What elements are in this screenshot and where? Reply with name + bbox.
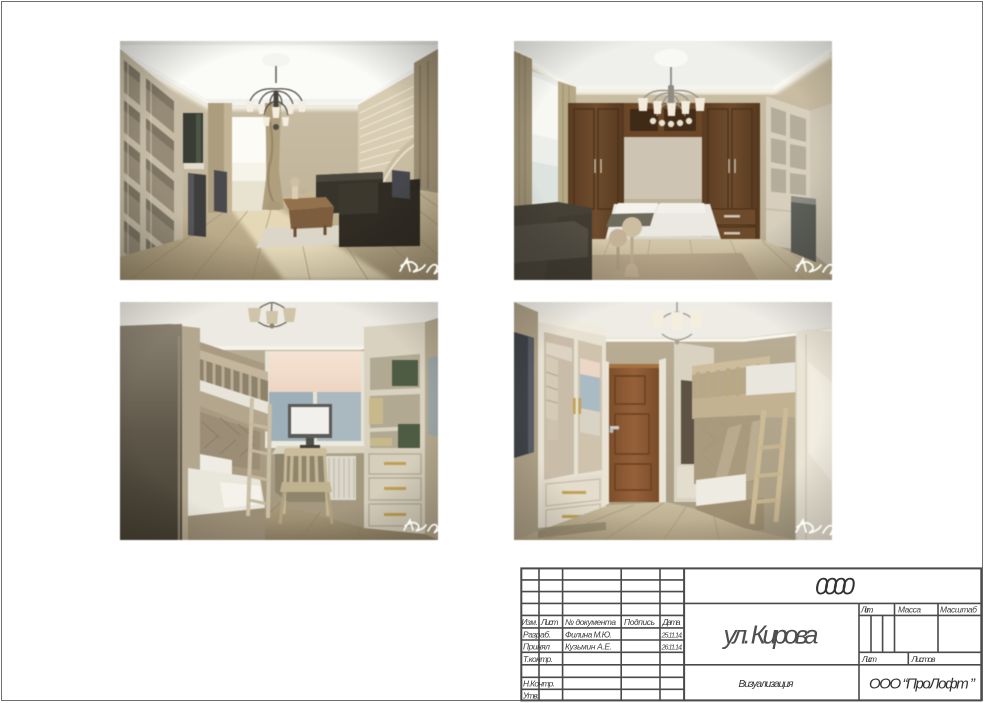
svg-text:Лист: Лист <box>540 617 559 627</box>
svg-text:26.11.14.: 26.11.14. <box>661 643 684 652</box>
svg-text:ООО “ПроЛофт ”: ООО “ПроЛофт ” <box>869 676 976 693</box>
svg-text:Филина М.Ю.: Филина М.Ю. <box>565 629 612 639</box>
svg-text:№ документа: № документа <box>565 617 616 627</box>
svg-text:Утв.: Утв. <box>522 691 539 701</box>
svg-text:Изм.: Изм. <box>522 617 539 627</box>
svg-text:Дата: Дата <box>662 617 681 627</box>
svg-text:Принял: Принял <box>523 642 550 652</box>
svg-text:Лист: Лист <box>861 654 877 664</box>
svg-text:Н.Контр.: Н.Контр. <box>523 678 555 688</box>
svg-text:Т.контр.: Т.контр. <box>523 654 553 664</box>
svg-text:Масштаб: Масштаб <box>940 604 977 614</box>
svg-text:Листов: Листов <box>911 654 937 664</box>
svg-text:Лит.: Лит. <box>860 604 873 614</box>
svg-text:Визуализация: Визуализация <box>739 679 795 690</box>
svg-text:25.11.14.: 25.11.14. <box>661 630 684 639</box>
svg-text:Подпись: Подпись <box>624 617 655 627</box>
svg-text:Масса: Масса <box>898 604 921 614</box>
svg-text:0000: 0000 <box>815 574 856 601</box>
svg-text:Кузьмин А.Е.: Кузьмин А.Е. <box>565 642 612 652</box>
svg-text:ул. Кирова: ул. Кирова <box>722 620 819 650</box>
svg-text:Разраб.: Разраб. <box>523 629 551 639</box>
